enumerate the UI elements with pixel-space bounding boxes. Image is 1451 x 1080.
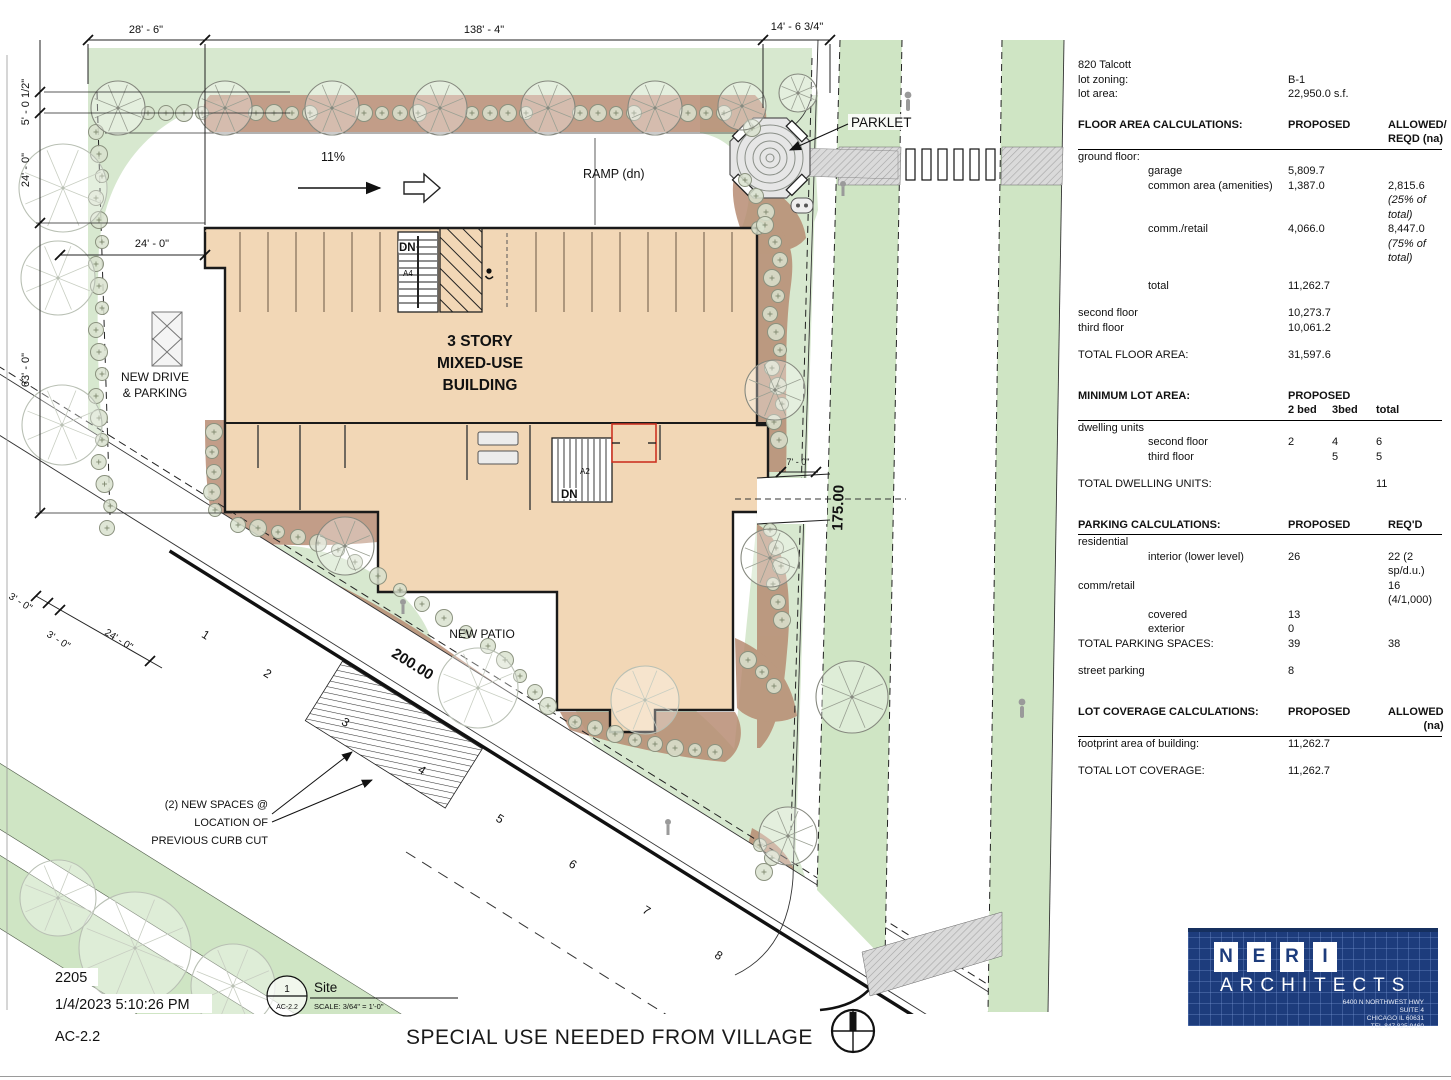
row-label: comm/retail: [1078, 579, 1288, 608]
tree-icon: [19, 144, 107, 232]
tree-icon: [628, 81, 682, 135]
sheet-number: AC-2.2: [55, 1029, 100, 1045]
dim-label: 5' - 0 1/2": [20, 79, 32, 125]
row-label: TOTAL FLOOR AREA:: [1078, 348, 1288, 363]
shrub-icon: [209, 504, 222, 517]
sheet-divider: [0, 1076, 1451, 1077]
logo-letter: R: [1280, 942, 1304, 972]
section-header: LOT COVERAGE CALCULATIONS:PROPOSEDALLOWE…: [1078, 705, 1442, 737]
view-name: Site: [314, 980, 337, 995]
dim-label: 138' - 4": [464, 24, 504, 36]
zoning-data-panel: 820 Talcott lot zoning: B-1 lot area: 22…: [1078, 58, 1442, 779]
shrub-icon: [749, 189, 764, 204]
table-row: TOTAL FLOOR AREA:31,597.6: [1078, 348, 1442, 363]
shrub-icon: [394, 584, 407, 597]
shrub-icon: [756, 666, 769, 679]
section-header: MINIMUM LOT AREA:PROPOSED: [1078, 389, 1442, 404]
dim-label: 7' - 0": [787, 457, 810, 467]
parklet-label: PARKLET: [851, 115, 912, 130]
allowed-value: [1388, 608, 1442, 623]
shrub-icon: [767, 679, 782, 694]
north-arrow-icon: [832, 1010, 874, 1052]
col-header: PROPOSED: [1288, 389, 1376, 404]
row-label: TOTAL LOT COVERAGE:: [1078, 764, 1288, 779]
row-label: third floor: [1078, 450, 1288, 465]
row-label: total: [1078, 279, 1288, 294]
drawing-sheet: { "plan": { "dims": { "top_left": "28' -…: [0, 0, 1451, 1080]
table-row: garage5,809.7: [1078, 164, 1442, 179]
new-spaces-label: PREVIOUS CURB CUT: [151, 835, 268, 847]
shrub-icon: [774, 344, 787, 357]
col-header: total: [1376, 403, 1442, 418]
shrub-icon: [272, 526, 285, 539]
shrub-icon: [773, 253, 788, 268]
tree-icon: [718, 82, 766, 130]
proposed-value: 0: [1288, 622, 1388, 637]
building-label: 3 STORY: [447, 333, 513, 350]
shrub-icon: [757, 217, 774, 234]
slope-label: 11%: [321, 150, 345, 164]
cell-value: [1288, 421, 1332, 436]
architect-logo: N E R I ARCHITECTS 6400 N NORTHWEST HWY …: [1188, 928, 1438, 1026]
detail-number: 1: [284, 984, 290, 995]
logo-word: ARCHITECTS: [1220, 975, 1428, 997]
allowed-value: 16 (4/1,000): [1388, 579, 1442, 608]
shrub-icon: [689, 744, 702, 757]
allowed-value: [1388, 321, 1442, 336]
stair-tag: A2: [580, 467, 590, 476]
allowed-value: [1388, 535, 1442, 550]
table-row: dwelling units: [1078, 421, 1442, 436]
cell-value: [1376, 421, 1442, 436]
proposed-value: 39: [1288, 637, 1388, 652]
tree-icon: [779, 74, 817, 112]
tree-icon: [741, 529, 799, 587]
dim-label: 24' - 0": [20, 153, 32, 187]
shrub-icon: [91, 455, 106, 470]
col-header: 3bed: [1332, 403, 1376, 418]
tree-icon: [21, 241, 95, 315]
calc-section: FLOOR AREA CALCULATIONS:PROPOSEDALLOWED/…: [1078, 118, 1442, 363]
cell-value: [1288, 477, 1332, 492]
calc-section: MINIMUM LOT AREA:PROPOSED2 bed3bedtotald…: [1078, 389, 1442, 492]
crosswalk-bars: [906, 149, 995, 180]
cell-value: [1288, 450, 1332, 465]
proposed-value: 5,809.7: [1288, 164, 1388, 179]
col-header: PROPOSED: [1288, 118, 1388, 147]
allowed-value: [1388, 664, 1442, 679]
logo-letter: E: [1247, 942, 1271, 972]
shrub-icon: [540, 698, 557, 715]
row-label: street parking: [1078, 664, 1288, 679]
shrub-icon: [607, 726, 624, 743]
table-row: comm/retail16 (4/1,000): [1078, 579, 1442, 608]
allowed-value: [1388, 348, 1442, 363]
proposed-value: 11,262.7: [1288, 279, 1388, 294]
shrub-icon: [206, 424, 223, 441]
drive-label: & PARKING: [123, 386, 187, 400]
table-row: second floor10,273.7: [1078, 306, 1442, 321]
shrub-icon: [769, 236, 782, 249]
cell-value: 5: [1376, 450, 1442, 465]
table-row: interior (lower level)2622 (2 sp/d.u.): [1078, 550, 1442, 579]
table-row: covered13: [1078, 608, 1442, 623]
detail-sheet: AC-2.2: [276, 1004, 298, 1011]
tree-icon: [438, 648, 518, 728]
shrub-icon: [376, 107, 389, 120]
table-row: footprint area of building:11,262.7: [1078, 737, 1442, 752]
tree-icon: [816, 661, 888, 733]
shrub-icon: [528, 685, 543, 700]
shrub-icon: [739, 174, 752, 187]
table-row: second floor246: [1078, 435, 1442, 450]
table-row: exterior0: [1078, 622, 1442, 637]
tree-icon: [305, 81, 359, 135]
table-row: TOTAL DWELLING UNITS:11: [1078, 477, 1442, 492]
tree-icon: [316, 517, 374, 575]
cell-value: 4: [1332, 435, 1376, 450]
shrub-icon: [483, 106, 498, 121]
shrub-icon: [415, 597, 430, 612]
dim-label: 24' - 0": [135, 238, 169, 250]
proposed-value: 26: [1288, 550, 1388, 579]
allowed-value: 2,815.6(25% of total): [1388, 179, 1442, 223]
allowed-value: [1388, 622, 1442, 637]
table-row: residential: [1078, 535, 1442, 550]
section-title: MINIMUM LOT AREA:: [1078, 389, 1288, 404]
shrub-icon: [206, 446, 219, 459]
table-row: common area (amenities)1,387.02,815.6(25…: [1078, 179, 1442, 223]
table-row: third floor55: [1078, 450, 1442, 465]
shrub-icon: [588, 721, 603, 736]
allowed-value: [1388, 764, 1442, 779]
shrub-icon: [204, 484, 221, 501]
table-row: TOTAL LOT COVERAGE:11,262.7: [1078, 764, 1442, 779]
cell-value: [1332, 421, 1376, 436]
cell-value: [1332, 477, 1376, 492]
tree-icon: [413, 81, 467, 135]
proposed-value: 8: [1288, 664, 1388, 679]
shrub-icon: [771, 432, 788, 449]
tree-icon: [79, 892, 191, 1004]
shrub-icon: [774, 612, 791, 629]
proposed-value: [1288, 579, 1388, 608]
col-header: ALLOWED(na): [1388, 705, 1444, 734]
lot-area-row: lot area: 22,950.0 s.f.: [1078, 87, 1442, 102]
street-stationing: 175.00: [829, 485, 848, 531]
row-label: common area (amenities): [1078, 179, 1288, 223]
logo-letter: N: [1214, 942, 1238, 972]
bike-rack-icon: [791, 198, 813, 213]
site-plan: 200.00 12345678: [0, 0, 1080, 1080]
table-row: street parking8: [1078, 664, 1442, 679]
shrub-icon: [96, 302, 109, 315]
shrub-icon: [629, 734, 642, 747]
shrub-icon: [96, 476, 113, 493]
proposed-value: 10,061.2: [1288, 321, 1388, 336]
shrub-icon: [207, 465, 222, 480]
shrub-icon: [756, 864, 773, 881]
shrub-icon: [610, 107, 623, 120]
shrub-icon: [648, 737, 663, 752]
dim-label: 14' - 6 3/4": [771, 21, 824, 33]
section-title: FLOOR AREA CALCULATIONS:: [1078, 118, 1288, 147]
row-label: garage: [1078, 164, 1288, 179]
cell-value: 2: [1288, 435, 1332, 450]
shrub-icon: [250, 520, 267, 537]
table-row: third floor10,061.2: [1078, 321, 1442, 336]
shrub-icon: [700, 107, 713, 120]
tree-icon: [198, 81, 252, 135]
new-spaces-label: (2) NEW SPACES @: [165, 799, 268, 811]
allowed-value: 8,447.0(75% of total): [1388, 222, 1442, 266]
shrub-icon: [89, 323, 104, 338]
cell-value: 11: [1376, 477, 1442, 492]
building-label: MIXED-USE: [437, 355, 523, 372]
calculation-sections: FLOOR AREA CALCULATIONS:PROPOSEDALLOWED/…: [1078, 118, 1442, 779]
row-label: exterior: [1078, 622, 1288, 637]
lot-zoning-row: lot zoning: B-1: [1078, 73, 1442, 88]
shrub-icon: [91, 344, 108, 361]
sub-header: 2 bed3bedtotal: [1078, 403, 1442, 421]
shrub-icon: [772, 290, 785, 303]
stair-tag: A4: [403, 269, 413, 278]
stair-dn-label: DN: [399, 242, 416, 254]
shrub-icon: [667, 740, 684, 757]
row-label: interior (lower level): [1078, 550, 1288, 579]
allowed-value: [1388, 150, 1442, 165]
row-label: second floor: [1078, 435, 1288, 450]
proposed-value: [1288, 535, 1388, 550]
project-address: 820 Talcott: [1078, 58, 1442, 73]
shrub-icon: [771, 595, 786, 610]
tree-icon: [191, 944, 275, 1028]
col-header: 2 bed: [1288, 403, 1332, 418]
tree-icon: [521, 81, 575, 135]
row-label: comm./retail: [1078, 222, 1288, 266]
proposed-value: 4,066.0: [1288, 222, 1388, 266]
col-header: PROPOSED: [1288, 705, 1388, 734]
ramp-label: RAMP (dn): [583, 167, 645, 181]
row-label: TOTAL PARKING SPACES:: [1078, 637, 1288, 652]
shrub-icon: [393, 106, 408, 121]
new-spaces-label: LOCATION OF: [194, 817, 268, 829]
cell-value: 6: [1376, 435, 1442, 450]
shrub-icon: [104, 500, 117, 513]
table-row: ground floor:: [1078, 150, 1442, 165]
tree-icon: [91, 81, 145, 135]
row-label: ground floor:: [1078, 150, 1288, 165]
tree-icon: [611, 666, 679, 734]
section-header: PARKING CALCULATIONS:PROPOSEDREQ'D: [1078, 518, 1442, 536]
proposed-value: 11,262.7: [1288, 737, 1388, 752]
row-label: covered: [1078, 608, 1288, 623]
allowed-value: [1388, 306, 1442, 321]
shrub-icon: [764, 270, 781, 287]
proposed-value: 11,262.7: [1288, 764, 1388, 779]
dim-label: 28' - 6": [129, 24, 163, 36]
view-scale: SCALE: 3/64" = 1'-0": [314, 1002, 384, 1011]
table-row: total11,262.7: [1078, 279, 1442, 294]
proposed-value: 10,273.7: [1288, 306, 1388, 321]
proposed-value: 31,597.6: [1288, 348, 1388, 363]
row-label: third floor: [1078, 321, 1288, 336]
shrub-icon: [436, 610, 453, 627]
table-row: comm./retail4,066.08,447.0(75% of total): [1078, 222, 1442, 266]
shrub-icon: [291, 530, 306, 545]
shrub-icon: [96, 368, 109, 381]
drive-label: NEW DRIVE: [121, 370, 189, 384]
col-header: REQ'D: [1388, 518, 1442, 533]
building-label: BUILDING: [443, 377, 518, 394]
print-datetime: 1/4/2023 5:10:26 PM: [55, 997, 190, 1013]
tree-icon: [22, 385, 102, 465]
proposed-value: 13: [1288, 608, 1388, 623]
shrub-icon: [590, 105, 607, 122]
allowed-value: 38: [1388, 637, 1442, 652]
allowed-value: [1388, 279, 1442, 294]
shrub-icon: [500, 105, 517, 122]
section-header: FLOOR AREA CALCULATIONS:PROPOSEDALLOWED/…: [1078, 118, 1442, 150]
table-row: TOTAL PARKING SPACES:3938: [1078, 637, 1442, 652]
shrub-icon: [96, 236, 109, 249]
row-label: residential: [1078, 535, 1288, 550]
row-label: TOTAL DWELLING UNITS:: [1078, 477, 1288, 492]
stair-dn-label: DN: [561, 489, 578, 501]
section-title: PARKING CALCULATIONS:: [1078, 518, 1288, 533]
shrub-icon: [370, 568, 387, 585]
tree-icon: [759, 807, 817, 865]
shrub-icon: [740, 652, 757, 669]
cell-value: 5: [1332, 450, 1376, 465]
crosswalk-ramp-east: [1001, 147, 1063, 185]
allowed-value: [1388, 164, 1442, 179]
shrub-icon: [100, 521, 115, 536]
project-number: 2205: [55, 970, 87, 986]
dim-label: 63' - 0": [20, 353, 32, 387]
shrub-icon: [231, 518, 246, 533]
trellis-structure: [152, 312, 182, 366]
patio-label: NEW PATIO: [449, 627, 515, 641]
proposed-value: [1288, 150, 1388, 165]
section-title: LOT COVERAGE CALCULATIONS:: [1078, 705, 1288, 734]
sheet-title: SPECIAL USE NEEDED FROM VILLAGE: [406, 1026, 813, 1050]
shrub-icon: [708, 745, 723, 760]
row-label: dwelling units: [1078, 421, 1288, 436]
col-header: PROPOSED: [1288, 518, 1388, 533]
shrub-icon: [768, 324, 785, 341]
row-label: second floor: [1078, 306, 1288, 321]
calc-section: PARKING CALCULATIONS:PROPOSEDREQ'Dreside…: [1078, 518, 1442, 679]
proposed-value: 1,387.0: [1288, 179, 1388, 223]
allowed-value: 22 (2 sp/d.u.): [1388, 550, 1442, 579]
calc-section: LOT COVERAGE CALCULATIONS:PROPOSEDALLOWE…: [1078, 705, 1442, 779]
logo-address: 6400 N NORTHWEST HWY SUITE 4 CHICAGO IL …: [1214, 999, 1428, 1031]
allowed-value: [1388, 737, 1442, 752]
row-label: footprint area of building:: [1078, 737, 1288, 752]
tree-icon: [20, 860, 96, 936]
shrub-icon: [763, 307, 778, 322]
col-header: ALLOWED/REQD (na): [1388, 118, 1447, 147]
logo-letter-tiles: N E R I: [1214, 942, 1428, 972]
shrub-icon: [569, 716, 582, 729]
tree-icon: [745, 360, 805, 420]
logo-letter: I: [1313, 942, 1337, 972]
